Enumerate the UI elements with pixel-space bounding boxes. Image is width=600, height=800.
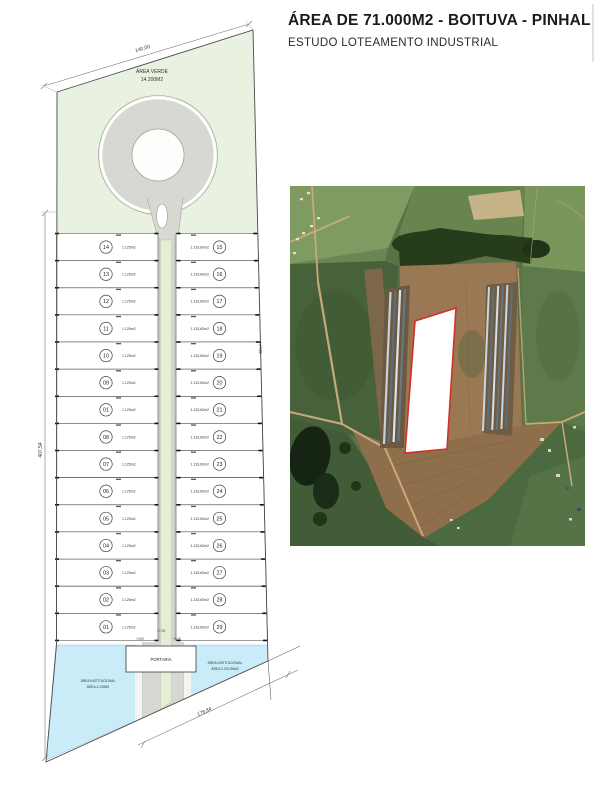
lot-area: 1.133,60m2 [191,354,210,358]
boundary-tick [191,343,196,344]
boundary-tick [177,368,181,370]
boundary-tick [191,235,196,236]
boundary-tick [191,479,196,480]
lot-area: 1.133,60m2 [191,571,210,575]
boundary-tick [177,423,181,425]
lot-number: 06 [103,489,109,495]
area-verde-value: 14.200M2 [141,77,163,83]
lot-number: 03 [103,571,109,577]
median-island [157,204,168,228]
boundary-tick [55,613,59,615]
institutional-right-line1: ÁREA INSTITUCIONAL [208,661,243,665]
boundary-tick [155,233,159,235]
boundary-tick [191,370,196,371]
lot-number: 04 [103,543,109,549]
boundary-tick [177,558,181,560]
lot-number: 02 [103,598,109,604]
boundary-tick [116,533,121,534]
lot-area: 1.133,60m2 [191,463,210,467]
institutional-right-line2: ÁREA 2.370,96M2 [211,667,238,671]
boundary-tick [155,504,159,506]
lot-number: 12 [103,299,109,305]
lot-number: 22 [217,435,223,441]
lot-area: 1.125m2 [122,490,136,494]
lot-area: 1.125m2 [122,625,136,629]
boundary-tick [191,316,196,317]
lot-number: 23 [217,462,223,468]
dim-right: 433,77 [258,341,263,355]
boundary-tick [177,531,181,533]
boundary-tick [191,452,196,453]
boundary-tick [177,233,181,235]
boundary-tick [260,504,264,506]
lot-area: 1.133,60m2 [191,408,210,412]
boundary-tick [116,587,121,588]
boundary-tick [258,450,262,452]
boundary-tick [191,533,196,534]
boundary-tick [191,587,196,588]
boundary-tick [116,262,121,263]
dim-bottom: 178,84 [196,706,213,718]
institutional-area-right [184,645,268,699]
boundary-tick [177,504,181,506]
boundary-tick [191,424,196,425]
boundary-tick [116,343,121,344]
boundary-tick [177,341,181,343]
institutional-left-line2: ÁREA 4.130M2 [87,685,110,689]
boundary-tick [262,585,266,587]
site-plan: 141.125m2131.125m2121.125m2111.125m2101.… [38,21,300,762]
lot-area: 1.125m2 [122,571,136,575]
boundary-tick [191,560,196,561]
boundary-tick [177,260,181,262]
boundary-tick [116,370,121,371]
boundary-tick [177,477,181,479]
boundary-tick [116,452,121,453]
boundary-tick [155,558,159,560]
area-verde-label: ÁREA VERDE [136,68,169,75]
boundary-tick [177,395,181,397]
lot-number: 01 [103,625,109,631]
lot-area: 1.125m2 [122,544,136,548]
drawing: 141.125m2131.125m2121.125m2111.125m2101.… [0,0,600,800]
boundary-tick [116,424,121,425]
boundary-tick [177,585,181,587]
boundary-tick [191,614,196,615]
boundary-tick [116,397,121,398]
boundary-tick [257,368,261,370]
field [523,186,585,272]
lot-area: 1.125m2 [122,245,136,249]
boundary-tick [261,558,265,560]
lot-area: 1.125m2 [122,435,136,439]
lot-number: 17 [217,299,223,305]
boundary-tick [255,287,259,289]
dim-left: 407,54 [38,442,44,458]
lot-area: 1.125m2 [122,300,136,304]
lot-number: 16 [217,272,223,278]
lot-area: 1.125m2 [122,327,136,331]
boundary-tick [155,287,159,289]
boundary-tick [258,423,262,425]
satellite-image [284,186,585,546]
lot-number: 25 [217,516,223,522]
boundary-tick [260,531,264,533]
lot-area: 1.125m2 [122,354,136,358]
lots-column-right: 151.133,60m2161.133,60m2171.133,60m2181.… [176,233,268,642]
lot-number: 28 [217,598,223,604]
lot-number: 29 [217,625,223,631]
lot-area: 1.125m2 [122,517,136,521]
boundary-tick [116,479,121,480]
lot-number: 15 [217,245,223,251]
boundary-tick [116,560,121,561]
lot-area: 1.133,60m2 [191,245,210,249]
lot-area: 1.133,60m2 [191,273,210,277]
center-island [132,129,184,181]
boundary-tick [155,260,159,262]
boundary-tick [259,477,263,479]
lot-area: 1.125m2 [122,273,136,277]
boundary-tick [155,423,159,425]
boundary-tick [116,235,121,236]
lot-area: 1.125m2 [122,408,136,412]
boundary-tick [177,287,181,289]
lot-area: 1.133,60m2 [191,517,210,521]
lot-number: 05 [103,516,109,522]
boundary-tick [191,397,196,398]
boundary-tick [155,613,159,615]
lot-area: 1.125m2 [122,463,136,467]
boundary-tick [177,613,181,615]
level-left: +0,00 [136,637,144,641]
lot-number: 27 [217,571,223,577]
lot-number: 20 [217,381,223,387]
lot-number: 08 [103,435,109,441]
panel-strips-right [483,282,518,436]
boundary-tick [253,233,257,235]
lot-area: 1.133,60m2 [191,300,210,304]
road-median [161,240,172,709]
boundary-tick [155,450,159,452]
lot-area: 1.133,60m2 [191,435,210,439]
lot-number: 18 [217,326,223,332]
sheet: ÁREA DE 71.000M2 - BOITUVA - PINHAL ESTU… [0,0,600,800]
lot-number: 21 [217,408,223,414]
boundary-tick [155,531,159,533]
boundary-tick [116,506,121,507]
portaria-label: PORTARIA [150,657,171,662]
level-right: +0,00 [173,637,181,641]
lot-number: 26 [217,543,223,549]
lot-number: 13 [103,272,109,278]
boundary-tick [116,614,121,615]
boundary-tick [191,262,196,263]
lot-area: 1.133,60m2 [191,327,210,331]
boundary-tick [155,341,159,343]
lot-area: 1.133,60m2 [191,544,210,548]
road-width-dim: 17,00 [157,629,166,633]
boundary-tick [116,316,121,317]
boundary-tick [155,368,159,370]
lot-area: 1.125m2 [122,598,136,602]
boundary-tick [191,289,196,290]
boundary-tick [262,613,266,615]
lot-area: 1.133,60m2 [191,381,210,385]
boundary-tick [116,289,121,290]
boundary-tick [177,314,181,316]
boundary-tick [155,314,159,316]
boundary-tick [254,260,258,262]
boundary-tick [155,585,159,587]
lot-number: 07 [103,462,109,468]
lot-number: 11 [103,326,109,332]
boundary-tick [155,395,159,397]
lots-column-left: 141.125m2131.125m2121.125m2111.125m2101.… [55,233,159,642]
boundary-tick [177,450,181,452]
boundary-tick [191,506,196,507]
lot-number: 10 [103,353,109,359]
lot-area: 1.133,60m2 [191,490,210,494]
lot-number: 14 [103,245,109,251]
boundary-tick [257,395,261,397]
boundary-tick [155,477,159,479]
lot-area: 1.133,60m2 [191,625,210,629]
lot-area: 1.125m2 [122,381,136,385]
lot-area: 1.133,60m2 [191,598,210,602]
lot-number: 24 [217,489,223,495]
dim-top: 140,00 [135,44,152,54]
institutional-left-line1: ÁREA INSTITUCIONAL [81,679,116,683]
lot-number: 01 [103,408,109,414]
lot-number: 19 [217,353,223,359]
boundary-tick [255,314,259,316]
lot-number: 09 [103,381,109,387]
